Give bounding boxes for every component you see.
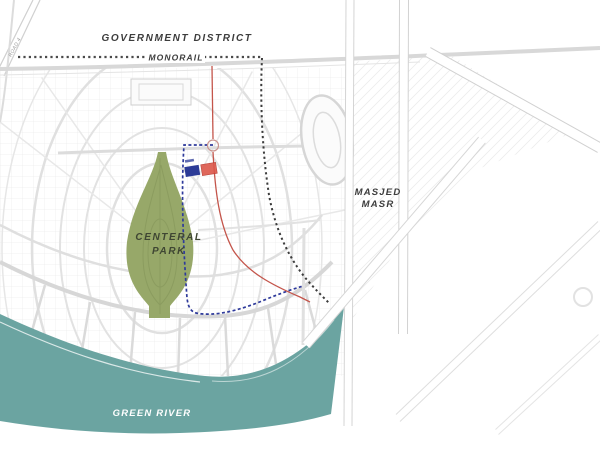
site-marker-red bbox=[201, 162, 218, 175]
government-district-label: GOVERNMENT DISTRICT bbox=[102, 33, 253, 44]
green-river-label: GREEN RIVER bbox=[113, 408, 192, 419]
masjed-masr-label-line2: MASR bbox=[362, 199, 395, 210]
monorail-label: MONORAIL bbox=[148, 53, 203, 63]
central-park-label-line1: CENTERAL bbox=[135, 232, 202, 243]
city-map: GOVERNMENT DISTRICT MONORAIL CENTERAL PA… bbox=[0, 0, 600, 450]
masjed-masr-label-line1: MASJED bbox=[355, 187, 402, 198]
central-park-label-line2: PARK bbox=[152, 246, 186, 257]
government-building-block bbox=[131, 79, 191, 105]
